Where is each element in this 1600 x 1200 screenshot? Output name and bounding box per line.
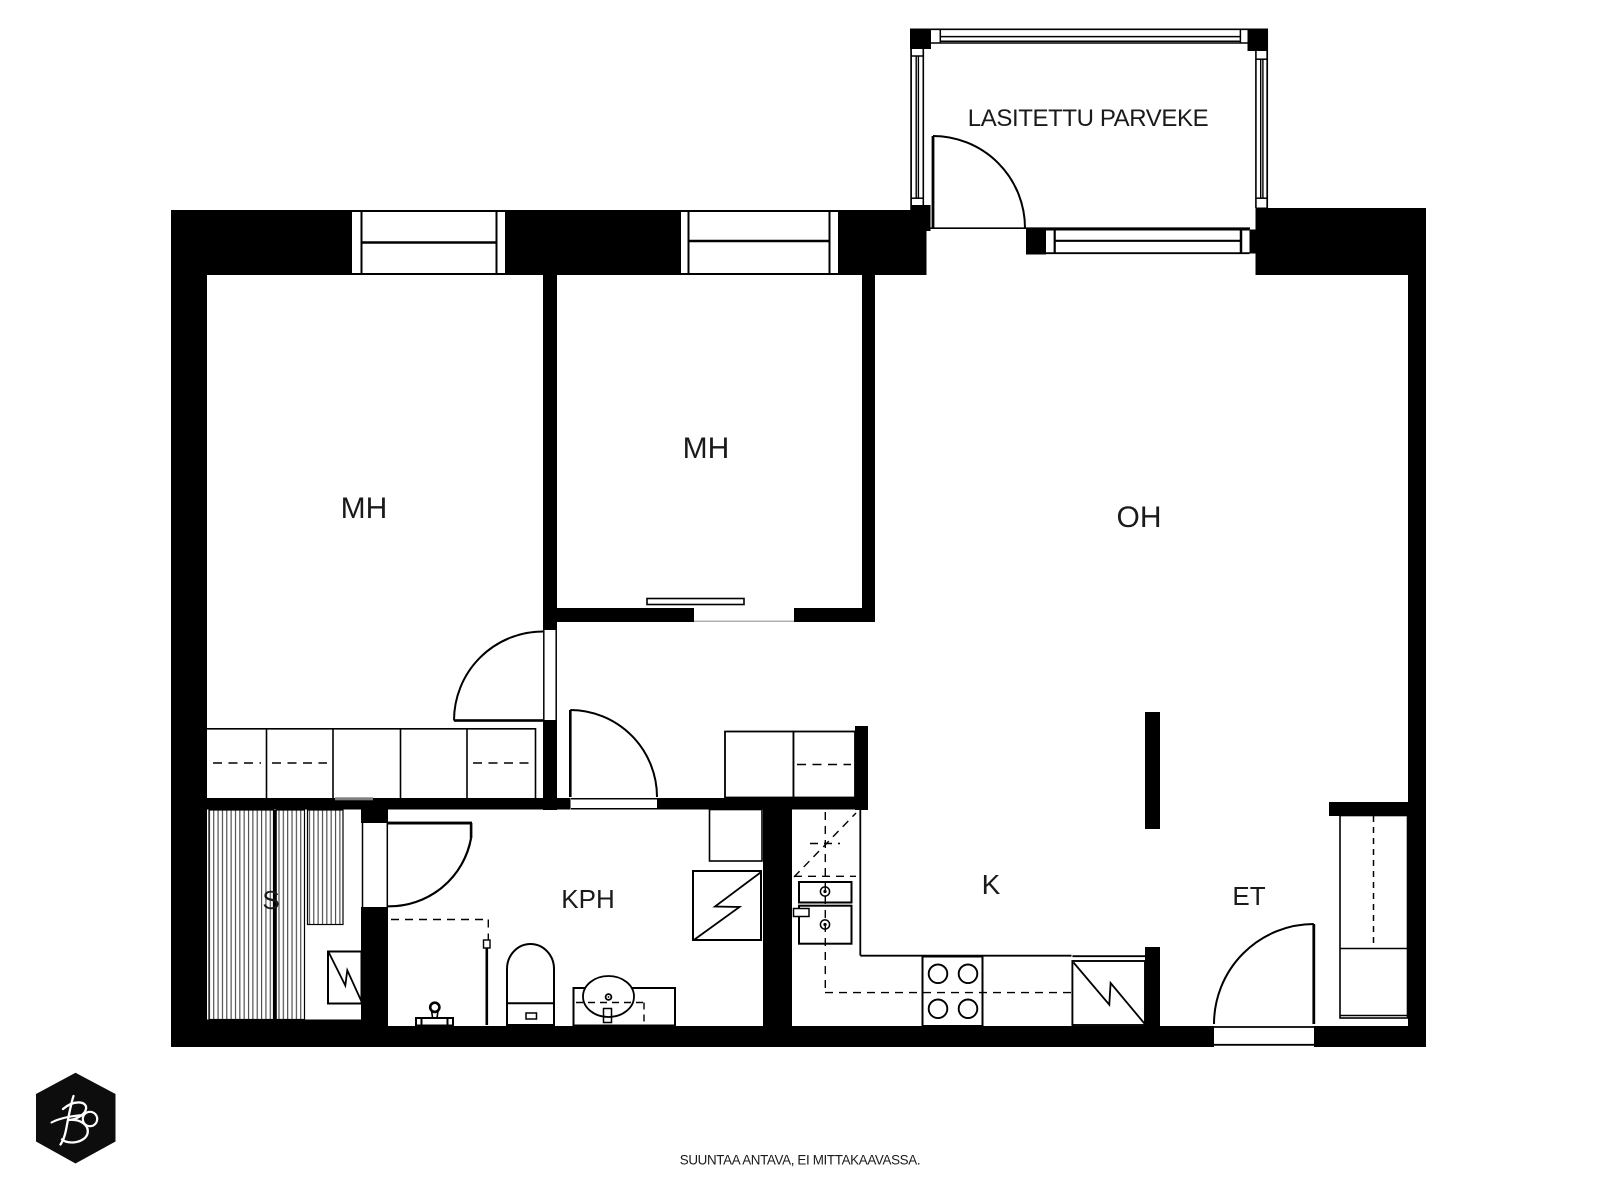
svg-text:K: K	[982, 869, 1001, 900]
svg-text:ET: ET	[1232, 881, 1265, 911]
svg-text:LASITETTU PARVEKE: LASITETTU PARVEKE	[968, 105, 1208, 132]
svg-text:KPH: KPH	[561, 884, 614, 914]
svg-text:S: S	[262, 885, 279, 915]
svg-text:MH: MH	[341, 492, 388, 525]
svg-text:SUUNTAA ANTAVA, EI MITTAKAAVAS: SUUNTAA ANTAVA, EI MITTAKAAVASSA.	[680, 1153, 920, 1168]
svg-text:OH: OH	[1117, 501, 1162, 534]
svg-text:MH: MH	[683, 432, 730, 465]
